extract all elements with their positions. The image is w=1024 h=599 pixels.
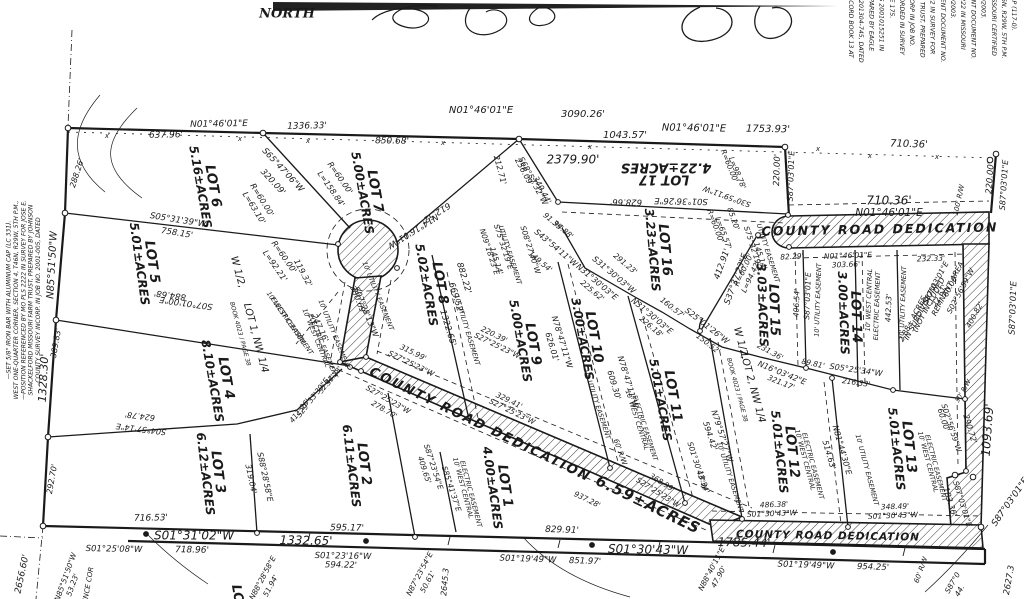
north-label: NORTH — [258, 7, 315, 22]
dim: 2645.3 — [439, 568, 450, 597]
dim: 94.88' — [551, 219, 575, 241]
dim: 442.53' — [884, 294, 894, 323]
dim: 595.17' — [330, 523, 364, 534]
dim: 758.15' — [160, 226, 193, 241]
bearing: S01°30'43"W — [747, 508, 798, 519]
dim: 220.00' — [984, 162, 996, 195]
dim: 389.83' — [49, 327, 63, 358]
dim: 1785.44' — [717, 535, 770, 550]
bearing: S01°19'49"W — [777, 560, 835, 572]
note-line: ND BY MO PLS 2001015251 IN — [878, 0, 885, 52]
section-ref: W 1/2, — [228, 255, 247, 289]
note-line: COLLAM, PREPARED BY EAGLE — [867, 0, 874, 51]
note-line: AGE 175. — [888, 0, 895, 18]
bearing: N01°46'01"E — [662, 122, 727, 134]
note-line: D IN SURVEY RECORD BOOK 13 AT — [847, 0, 854, 59]
dim: 119.32' — [292, 258, 314, 289]
note-line: REESTABLISHMENT DOCUMENT NO. — [969, 0, 976, 59]
lot-14-acres: 3.00±ACRES — [835, 271, 852, 355]
dim: 216.33' — [841, 376, 870, 389]
dim: 82.29' — [780, 251, 804, 261]
note-line: /30/2002, RECORDED IN SURVEY — [898, 0, 905, 56]
lot-15-acres: 3.03±ACRES — [754, 263, 771, 347]
x-tick: x — [440, 139, 446, 147]
dim: 1332.65' — [279, 533, 332, 548]
x-tick: x — [867, 152, 873, 160]
x-tick: x — [305, 137, 311, 145]
bearing: S01°30'43"W — [868, 510, 919, 521]
dim: 710.36' — [890, 138, 928, 150]
dim: 710.36' — [866, 194, 911, 208]
note-line: —SET 5/8" IRON BAR WITH ALUMINUM CAP (LC… — [6, 221, 13, 380]
lot-13-acres: 5.01±ACRES — [885, 407, 908, 491]
easement: 10' UTILITY EASEMENT — [813, 262, 824, 337]
dim: 160.57' — [658, 295, 686, 320]
labels-layer: NORTHN01°46'01"E637.96'1336.33'850.68'N0… — [13, 7, 1024, 599]
bearing: S87°03'01"E — [1008, 280, 1020, 335]
bearing: S04°57'14"E — [114, 421, 166, 436]
dim: 1093.69' — [979, 403, 997, 457]
bearing: S88°28'58"E — [255, 451, 275, 503]
bearing: S87°03'01"E — [998, 159, 1011, 211]
note-line: BAR/CAP (117-0). — [1010, 0, 1017, 31]
dim: 1336.33' — [287, 121, 327, 132]
note-line: BY MO PLS 2222 IN SURVEY FOR — [929, 0, 936, 54]
lot-17-acres: 4.22±ACRES — [621, 160, 712, 175]
note-line: WEST ONE-QUARTER CORNER, SECTION 4, T46N… — [13, 201, 20, 400]
dim: 411.26' — [287, 397, 312, 425]
x-tick: x — [815, 145, 821, 153]
x-tick: x — [104, 132, 110, 140]
dim: 716.53' — [134, 513, 168, 524]
plat-drawing: NORTHN01°46'01"E637.96'1336.33'850.68'N0… — [0, 0, 1024, 599]
plat-map: NORTHN01°46'01"E637.96'1336.33'850.68'N0… — [0, 0, 1024, 599]
dim: 718.96' — [175, 545, 209, 556]
bearing: S87°03'01"E — [990, 476, 1024, 529]
dim: 18.34' — [696, 469, 712, 494]
dim: 1322.65' — [437, 309, 458, 348]
easement: 10' UTILITY EASEMENT — [854, 433, 881, 507]
easement: ELECTRIC EASEMENT — [872, 270, 882, 340]
dim: 1043.57' — [603, 130, 647, 141]
bearing: N01°46'01"E — [449, 105, 514, 116]
dim: 2627.3 — [1002, 565, 1017, 596]
x-tick: x — [587, 143, 593, 151]
dim: 2656.60' — [13, 554, 31, 595]
dim: 851.97' — [569, 556, 601, 567]
lot-16-acres: 3.23±ACRES — [642, 208, 663, 292]
dim: 2379.90' — [547, 153, 600, 167]
fragment: LO — [228, 583, 246, 599]
dim: 624.78' — [124, 410, 155, 423]
dim: 412.91' — [712, 247, 732, 281]
note-line: R REESTABLISHMENT DOCUMENT NO. — [939, 0, 946, 62]
x-tick: x — [934, 153, 940, 161]
bearing: S87°03'01"E — [786, 150, 797, 202]
easement: UTILITY EASEMENT — [497, 225, 524, 287]
bearing: S01°25'08"W — [86, 544, 144, 555]
note-line: /29/2003. — [980, 0, 987, 19]
lot-12-acres: 5.01±ACRES — [768, 410, 791, 494]
dim: 288.26' — [68, 157, 86, 189]
note: FENCE COR — [81, 566, 96, 599]
note-line: DRAWING NAME: 201304-745, DATED — [857, 0, 864, 63]
dim: 884.68' — [153, 287, 186, 301]
note-line: —POSITION REFERENCED BY MO PLS 2222 IN S… — [20, 200, 27, 400]
note-line: COUNTY SURVEY INCORP. IN JOB NO. 2001-00… — [35, 217, 42, 383]
bearing: N01°46'01"E — [190, 119, 248, 130]
note-line: SURVEY INCORP IN JOB NO. — [908, 0, 915, 46]
dim: 609.30' — [605, 369, 622, 401]
dim: 637.96' — [149, 130, 183, 141]
bearing: S01°31'02"W — [154, 529, 235, 543]
dim: 319.04' — [243, 463, 258, 494]
dim: 829.91' — [545, 525, 579, 536]
dim: 937.28' — [573, 489, 602, 510]
dim: 954.25' — [857, 562, 889, 573]
note-line: SHACKELFORD MISSOURI FARM TRUST, PREPARE… — [28, 204, 35, 395]
bearing: S01°19'49"W — [499, 554, 557, 566]
road-name: COUNTY ROAD DEDICATION — [367, 365, 593, 486]
dim: 303.66' — [832, 260, 861, 270]
dim: 212.71' — [492, 154, 509, 186]
easement: 100' R/W — [952, 183, 967, 217]
north-arrow-icon — [273, 2, 838, 41]
dim: 220.00' — [772, 154, 783, 186]
dim: 406.54' — [792, 289, 802, 318]
note-line: PLS 2222 IN MISSOURI CERTIFIED — [990, 0, 997, 56]
note-line: SECTION 04, T46N, R29W, 5TH P.M. — [1000, 0, 1007, 59]
dim: 1753.93' — [746, 124, 790, 136]
dim: 628.66' — [610, 196, 642, 207]
easement: 60' R/W — [913, 555, 930, 584]
bearing: S01°30'43"W — [608, 542, 689, 557]
note-line: /29/2003. — [949, 0, 956, 19]
bearing: N01°46'01"E — [855, 207, 923, 219]
dim: 514.63' — [821, 439, 838, 471]
bearing: S87°03'01"E — [802, 272, 813, 320]
note-line: MISSOURI FARM TRUST, PREPARED — [918, 0, 925, 58]
dim: 850.68' — [375, 136, 409, 147]
bearing: S01°36'26"E — [653, 195, 708, 206]
dim: 85.20' — [725, 206, 742, 231]
dim: 594.22' — [325, 560, 357, 571]
dim: 3090.26' — [561, 109, 605, 120]
note-line: BY MO PLS 2222 IN MISSOURI — [959, 0, 966, 50]
x-tick: x — [237, 135, 243, 143]
